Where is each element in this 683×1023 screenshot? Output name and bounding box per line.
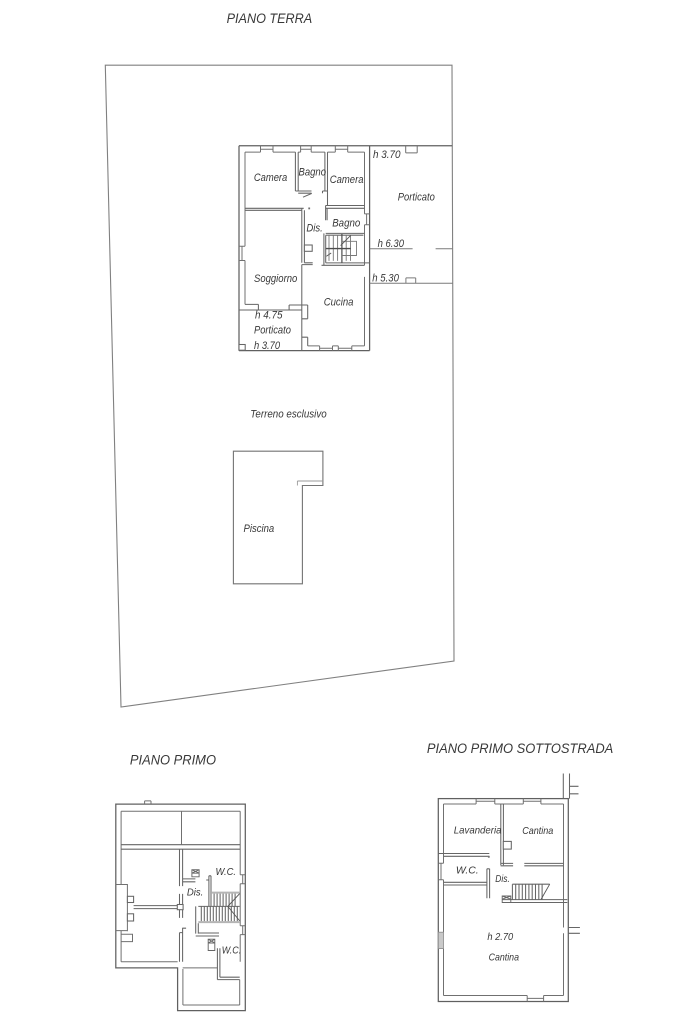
svg-text:h 4.75: h 4.75 [255, 310, 283, 322]
svg-text:Terreno esclusivo: Terreno esclusivo [250, 409, 326, 421]
svg-text:Dis.: Dis. [187, 887, 203, 898]
svg-text:Cantina: Cantina [489, 953, 520, 964]
svg-text:Porticato: Porticato [254, 325, 291, 337]
svg-text:Cucina: Cucina [324, 297, 354, 309]
svg-text:Piscina: Piscina [244, 523, 275, 535]
svg-text:Bagno: Bagno [299, 166, 327, 178]
svg-text:h 3.70: h 3.70 [373, 149, 401, 161]
svg-text:h 5.30: h 5.30 [372, 272, 399, 284]
svg-text:PIANO TERRA: PIANO TERRA [227, 11, 313, 26]
svg-text:Camera: Camera [330, 174, 364, 186]
svg-text:h 2.70: h 2.70 [487, 932, 513, 943]
svg-text:Cantina: Cantina [522, 826, 553, 837]
svg-text:Dis.: Dis. [306, 223, 322, 235]
svg-text:h 3.70: h 3.70 [254, 340, 280, 352]
svg-text:W.C.: W.C. [216, 867, 237, 878]
svg-text:W.C.: W.C. [222, 946, 242, 957]
svg-text:Camera: Camera [254, 172, 287, 184]
svg-text:Soggiorno: Soggiorno [254, 273, 297, 285]
svg-text:Lavanderia: Lavanderia [454, 826, 502, 837]
svg-text:PIANO PRIMO SOTTOSTRADA: PIANO PRIMO SOTTOSTRADA [427, 741, 613, 756]
svg-text:h 6.30: h 6.30 [378, 238, 404, 250]
svg-text:Porticato: Porticato [398, 191, 435, 203]
svg-text:PIANO PRIMO: PIANO PRIMO [130, 753, 217, 768]
svg-text:Bagno: Bagno [332, 217, 360, 229]
svg-text:Dis.: Dis. [495, 874, 510, 885]
svg-text:W.C.: W.C. [456, 866, 479, 877]
